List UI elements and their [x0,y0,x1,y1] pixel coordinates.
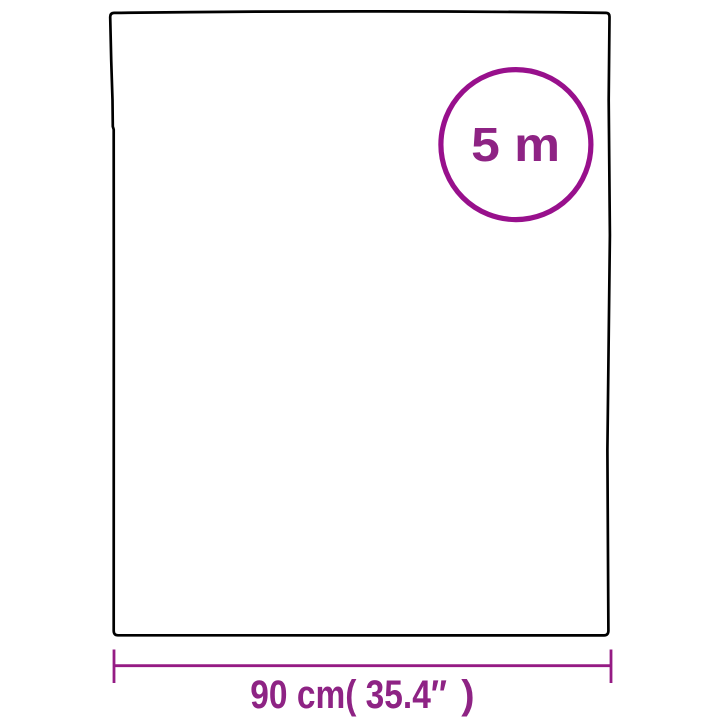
svg-text:5 m: 5 m [471,119,560,172]
svg-text:90 cm( 35.4″: 90 cm( 35.4″ [250,673,447,717]
svg-text:): ) [461,673,474,717]
